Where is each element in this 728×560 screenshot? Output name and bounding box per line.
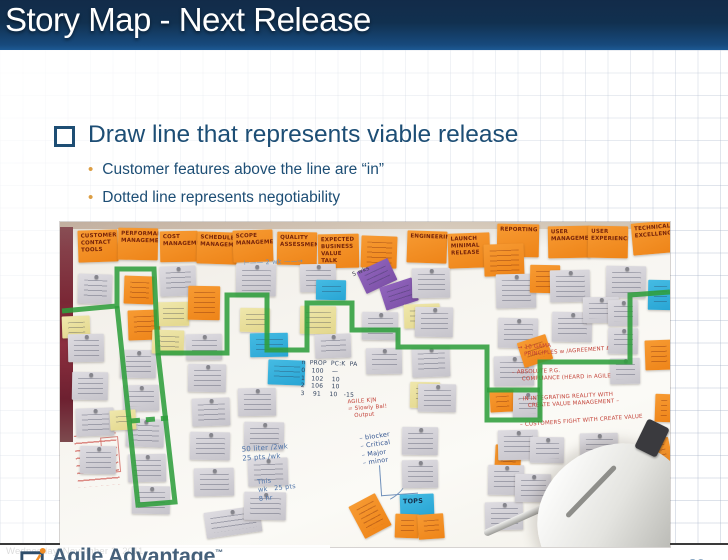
- logo-name: Agile Advantage™: [52, 544, 223, 560]
- title-bar: Story Map - Next Release: [0, 0, 728, 50]
- logo-chart-icon: [18, 546, 49, 560]
- sub-bullet-2: • Dotted line represents negotiability: [88, 188, 384, 207]
- slide-content: Draw line that represents viable release…: [0, 50, 728, 543]
- sub-bullet-1: • Customer features above the line are “…: [88, 160, 384, 179]
- bullet-dot-icon: •: [88, 188, 93, 207]
- page-number: 20: [688, 556, 705, 560]
- sub-bullet-list: • Customer features above the line are “…: [88, 160, 384, 216]
- bullet-dot-icon: •: [88, 160, 93, 179]
- story-map-photo: CUSTOMER CONTACT TOOLSPERFORMANCE MANAGE…: [60, 222, 670, 547]
- main-bullet-text: Draw line that represents viable release: [88, 121, 518, 149]
- main-bullet: Draw line that represents viable release: [54, 121, 518, 149]
- sub-bullet-2-text: Dotted line represents negotiability: [102, 188, 340, 207]
- slide-title: Story Map - Next Release: [5, 1, 371, 39]
- sub-bullet-1-text: Customer features above the line are “in…: [102, 160, 384, 179]
- slide: Story Map - Next Release Draw line that …: [0, 0, 728, 560]
- checkbox-bullet-icon: [54, 126, 75, 147]
- trademark-symbol: ™: [215, 548, 223, 557]
- agile-advantage-logo: Agile Advantage™: [18, 544, 223, 560]
